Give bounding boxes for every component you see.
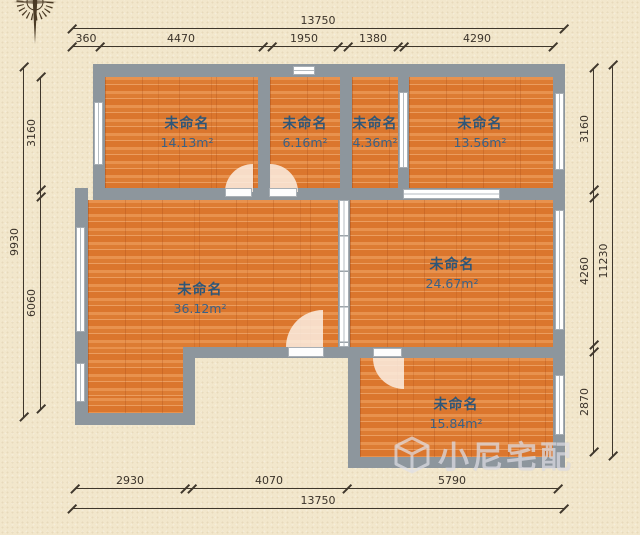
window-right-room7 bbox=[555, 375, 564, 435]
window-left-upper bbox=[94, 102, 103, 165]
wide-opening-room4-dining bbox=[403, 189, 500, 199]
window-left-lower bbox=[76, 363, 85, 402]
dim-label: 5790 bbox=[438, 474, 466, 487]
room-floor-5-extension bbox=[88, 347, 183, 413]
compass-rose-icon bbox=[8, 0, 62, 46]
dim-label: 6060 bbox=[25, 289, 38, 317]
dim-label: 11230 bbox=[597, 244, 610, 279]
dim-label: 13750 bbox=[301, 14, 336, 27]
door-leaf-living bbox=[288, 347, 324, 357]
dim-top-total: 13750 bbox=[72, 28, 564, 29]
door-leaf-room7 bbox=[373, 348, 402, 357]
door-leaf-room1 bbox=[225, 188, 252, 197]
window-right-room6 bbox=[555, 210, 564, 330]
dim-label: 360 bbox=[76, 32, 97, 45]
dim-label: 1380 bbox=[359, 32, 387, 45]
dim-bottom-total: 13750 bbox=[72, 508, 564, 509]
dim-right-total: 11230 bbox=[612, 65, 613, 457]
wall-bottom bbox=[348, 457, 565, 468]
glass-partition-room3-room4 bbox=[399, 92, 408, 168]
dim-label: 4290 bbox=[463, 32, 491, 45]
dim-top-segments: 360 4470 1950 1380 4290 bbox=[72, 46, 553, 47]
wall-top bbox=[93, 64, 565, 77]
dim-label: 4070 bbox=[255, 474, 283, 487]
dim-left-segments: 3160 6060 bbox=[40, 77, 41, 410]
room-floor-3 bbox=[352, 77, 398, 188]
dim-label: 2930 bbox=[116, 474, 144, 487]
glass-partition-living-dining bbox=[339, 200, 349, 347]
dim-label: 3160 bbox=[578, 115, 591, 143]
dim-label: 4470 bbox=[167, 32, 195, 45]
room-floor-4 bbox=[409, 77, 553, 188]
room-floor-6 bbox=[350, 200, 553, 347]
window-left-living bbox=[76, 227, 85, 332]
dim-label: 13750 bbox=[301, 494, 336, 507]
dim-label: 3160 bbox=[25, 119, 38, 147]
door-leaf-room2 bbox=[269, 188, 297, 197]
dim-right-segments: 3160 4260 2870 bbox=[593, 68, 594, 453]
wall-room1-room2 bbox=[258, 77, 270, 200]
dim-label: 9930 bbox=[8, 228, 21, 256]
window-top-wall bbox=[293, 66, 315, 75]
dim-label: 1950 bbox=[290, 32, 318, 45]
dim-left-total: 9930 bbox=[23, 67, 24, 418]
window-right-room4 bbox=[555, 93, 564, 170]
dim-bottom-segments: 2930 4070 5790 bbox=[75, 488, 558, 489]
wall-bottom-left bbox=[75, 413, 195, 425]
dim-label: 4260 bbox=[578, 257, 591, 285]
wall-room2-room3 bbox=[340, 77, 352, 200]
floor-plan-canvas: 未命名 14.13m² 未命名 6.16m² 未命名 4.36m² 未命名 13… bbox=[0, 0, 640, 535]
wall-notch-vertical bbox=[348, 358, 360, 468]
dim-label: 2870 bbox=[578, 388, 591, 416]
